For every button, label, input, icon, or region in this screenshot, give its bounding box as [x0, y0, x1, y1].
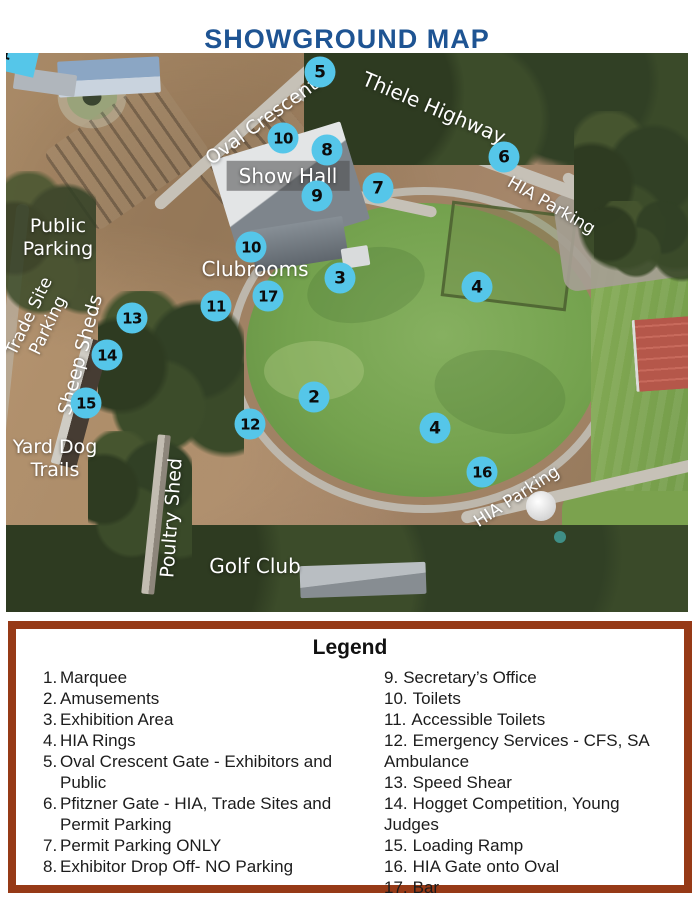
- legend-item: 1.Marquee: [43, 667, 368, 688]
- map-marker-4: 4: [420, 413, 451, 444]
- map-marker-4: 4: [462, 272, 493, 303]
- legend-item-number: 10.: [384, 689, 408, 708]
- legend-item-text: Amusements: [60, 688, 368, 709]
- legend-item-number: 12.: [384, 731, 408, 750]
- map-label-oval-crescent: Oval Crescent: [201, 74, 322, 171]
- legend-item-text: Exhibitor Drop Off- NO Parking: [60, 856, 368, 877]
- legend-item-number: 6.: [43, 793, 60, 814]
- marker-number: 3: [334, 268, 346, 288]
- legend-item-number: 16.: [384, 857, 408, 876]
- legend-item-text: Bar: [413, 878, 439, 897]
- map-marker-7: 7: [363, 173, 394, 204]
- map-marker-12: 12: [235, 409, 266, 440]
- legend-item-number: 14.: [384, 794, 408, 813]
- legend-item-number: 8.: [43, 856, 60, 877]
- map-marker-6: 6: [489, 142, 520, 173]
- legend-item: 6.Pfitzner Gate - HIA, Trade Sites and P…: [43, 793, 368, 835]
- legend-item-number: 15.: [384, 836, 408, 855]
- map-marker-11: 11: [201, 291, 232, 322]
- map-marker-5: 5: [305, 57, 336, 88]
- map-marker-8: 8: [312, 135, 343, 166]
- legend-item-text: Toilets: [413, 689, 461, 708]
- legend-item: 4.HIA Rings: [43, 730, 368, 751]
- legend-item-text: Loading Ramp: [413, 836, 524, 855]
- map-label-hia-parking-north: HIA Parking: [503, 173, 598, 240]
- legend-item: 10.Toilets: [384, 688, 674, 709]
- legend-item: 12.Emergency Services - CFS, SA Ambulanc…: [384, 730, 674, 772]
- showground-aerial-map: 1 510897610341711131415212416Thiele High…: [6, 53, 688, 612]
- marker-number: 6: [498, 147, 510, 167]
- legend-item-number: 9.: [384, 668, 398, 687]
- marker-number: 12: [240, 415, 260, 433]
- marquee-number: 1: [6, 53, 14, 64]
- legend-title: Legend: [16, 636, 684, 660]
- legend-item-text: HIA Gate onto Oval: [413, 857, 559, 876]
- map-label-golf-club: Golf Club: [209, 554, 301, 578]
- marker-number: 14: [97, 346, 117, 364]
- map-label-show-hall: Show Hall: [227, 161, 350, 191]
- map-label-trade-site-parking: Trade Site Parking: [6, 274, 76, 368]
- map-label-poultry-shed: Poultry Shed: [156, 457, 187, 578]
- legend-columns: 1.Marquee2.Amusements3.Exhibition Area4.…: [16, 667, 684, 898]
- map-marker-10: 10: [268, 123, 299, 154]
- marker-number: 5: [314, 62, 326, 82]
- legend-item-text: Permit Parking ONLY: [60, 835, 368, 856]
- legend-column-left: 1.Marquee2.Amusements3.Exhibition Area4.…: [43, 667, 368, 898]
- legend-item-text: Exhibition Area: [60, 709, 368, 730]
- legend-item-text: Marquee: [60, 667, 368, 688]
- marker-number: 11: [206, 297, 226, 315]
- marker-number: 10: [241, 238, 261, 256]
- legend-column-right: 9.Secretary’s Office10.Toilets11.Accessi…: [368, 667, 674, 898]
- legend-item-number: 7.: [43, 835, 60, 856]
- map-label-yard-dog-trails: Yard Dog Trails: [13, 436, 98, 482]
- legend-item: 16.HIA Gate onto Oval: [384, 856, 674, 877]
- legend-item-text: Accessible Toilets: [411, 710, 545, 729]
- marker-number: 8: [321, 140, 333, 160]
- map-label-thiele-highway: Thiele Highway: [359, 67, 510, 149]
- map-marker-13: 13: [117, 303, 148, 334]
- legend-item-number: 13.: [384, 773, 408, 792]
- map-marker-17: 17: [253, 281, 284, 312]
- legend-item: 7.Permit Parking ONLY: [43, 835, 368, 856]
- legend-item-number: 5.: [43, 751, 60, 772]
- map-marker-9: 9: [302, 181, 333, 212]
- legend-item-number: 2.: [43, 688, 60, 709]
- legend-item-number: 17.: [384, 878, 408, 897]
- legend-item: 8.Exhibitor Drop Off- NO Parking: [43, 856, 368, 877]
- map-label-public-parking: Public Parking: [23, 215, 93, 261]
- legend-item: 3.Exhibition Area: [43, 709, 368, 730]
- marker-number: 4: [471, 277, 483, 297]
- map-marker-15: 15: [71, 388, 102, 419]
- page-title: SHOWGROUND MAP: [0, 24, 694, 55]
- legend-item: 9.Secretary’s Office: [384, 667, 674, 688]
- marker-number: 17: [258, 287, 278, 305]
- legend-item-number: 11.: [384, 710, 406, 729]
- marker-number: 7: [372, 178, 384, 198]
- marker-number: 2: [308, 387, 320, 407]
- legend-item: 17.Bar: [384, 877, 674, 898]
- map-marker-16: 16: [467, 457, 498, 488]
- map-marker-3: 3: [325, 263, 356, 294]
- legend-item-text: Oval Crescent Gate - Exhibitors and Publ…: [60, 751, 368, 793]
- legend-item: 2.Amusements: [43, 688, 368, 709]
- legend-item: 11.Accessible Toilets: [384, 709, 674, 730]
- map-marker-2: 2: [299, 382, 330, 413]
- legend-item-number: 4.: [43, 730, 60, 751]
- legend-item-text: HIA Rings: [60, 730, 368, 751]
- marker-number: 10: [273, 129, 293, 147]
- map-annotations: 510897610341711131415212416Thiele Highwa…: [6, 53, 688, 612]
- legend-item-text: Emergency Services - CFS, SA Ambulance: [384, 731, 650, 771]
- legend-item: 15.Loading Ramp: [384, 835, 674, 856]
- marker-number: 4: [429, 418, 441, 438]
- legend-panel: Legend 1.Marquee2.Amusements3.Exhibition…: [8, 621, 692, 893]
- map-marker-10: 10: [236, 232, 267, 263]
- legend-item-text: Pfitzner Gate - HIA, Trade Sites and Per…: [60, 793, 368, 835]
- legend-item: 5.Oval Crescent Gate - Exhibitors and Pu…: [43, 751, 368, 793]
- legend-item-number: 3.: [43, 709, 60, 730]
- marker-number: 16: [472, 463, 492, 481]
- marker-number: 15: [76, 394, 96, 412]
- legend-item: 13.Speed Shear: [384, 772, 674, 793]
- marker-number: 9: [311, 186, 323, 206]
- legend-item-text: Hogget Competition, Young Judges: [384, 794, 620, 834]
- legend-item-text: Speed Shear: [413, 773, 512, 792]
- map-marker-14: 14: [92, 340, 123, 371]
- legend-item-text: Secretary’s Office: [403, 668, 537, 687]
- legend-item-number: 1.: [43, 667, 60, 688]
- legend-item: 14.Hogget Competition, Young Judges: [384, 793, 674, 835]
- marker-number: 13: [122, 309, 142, 327]
